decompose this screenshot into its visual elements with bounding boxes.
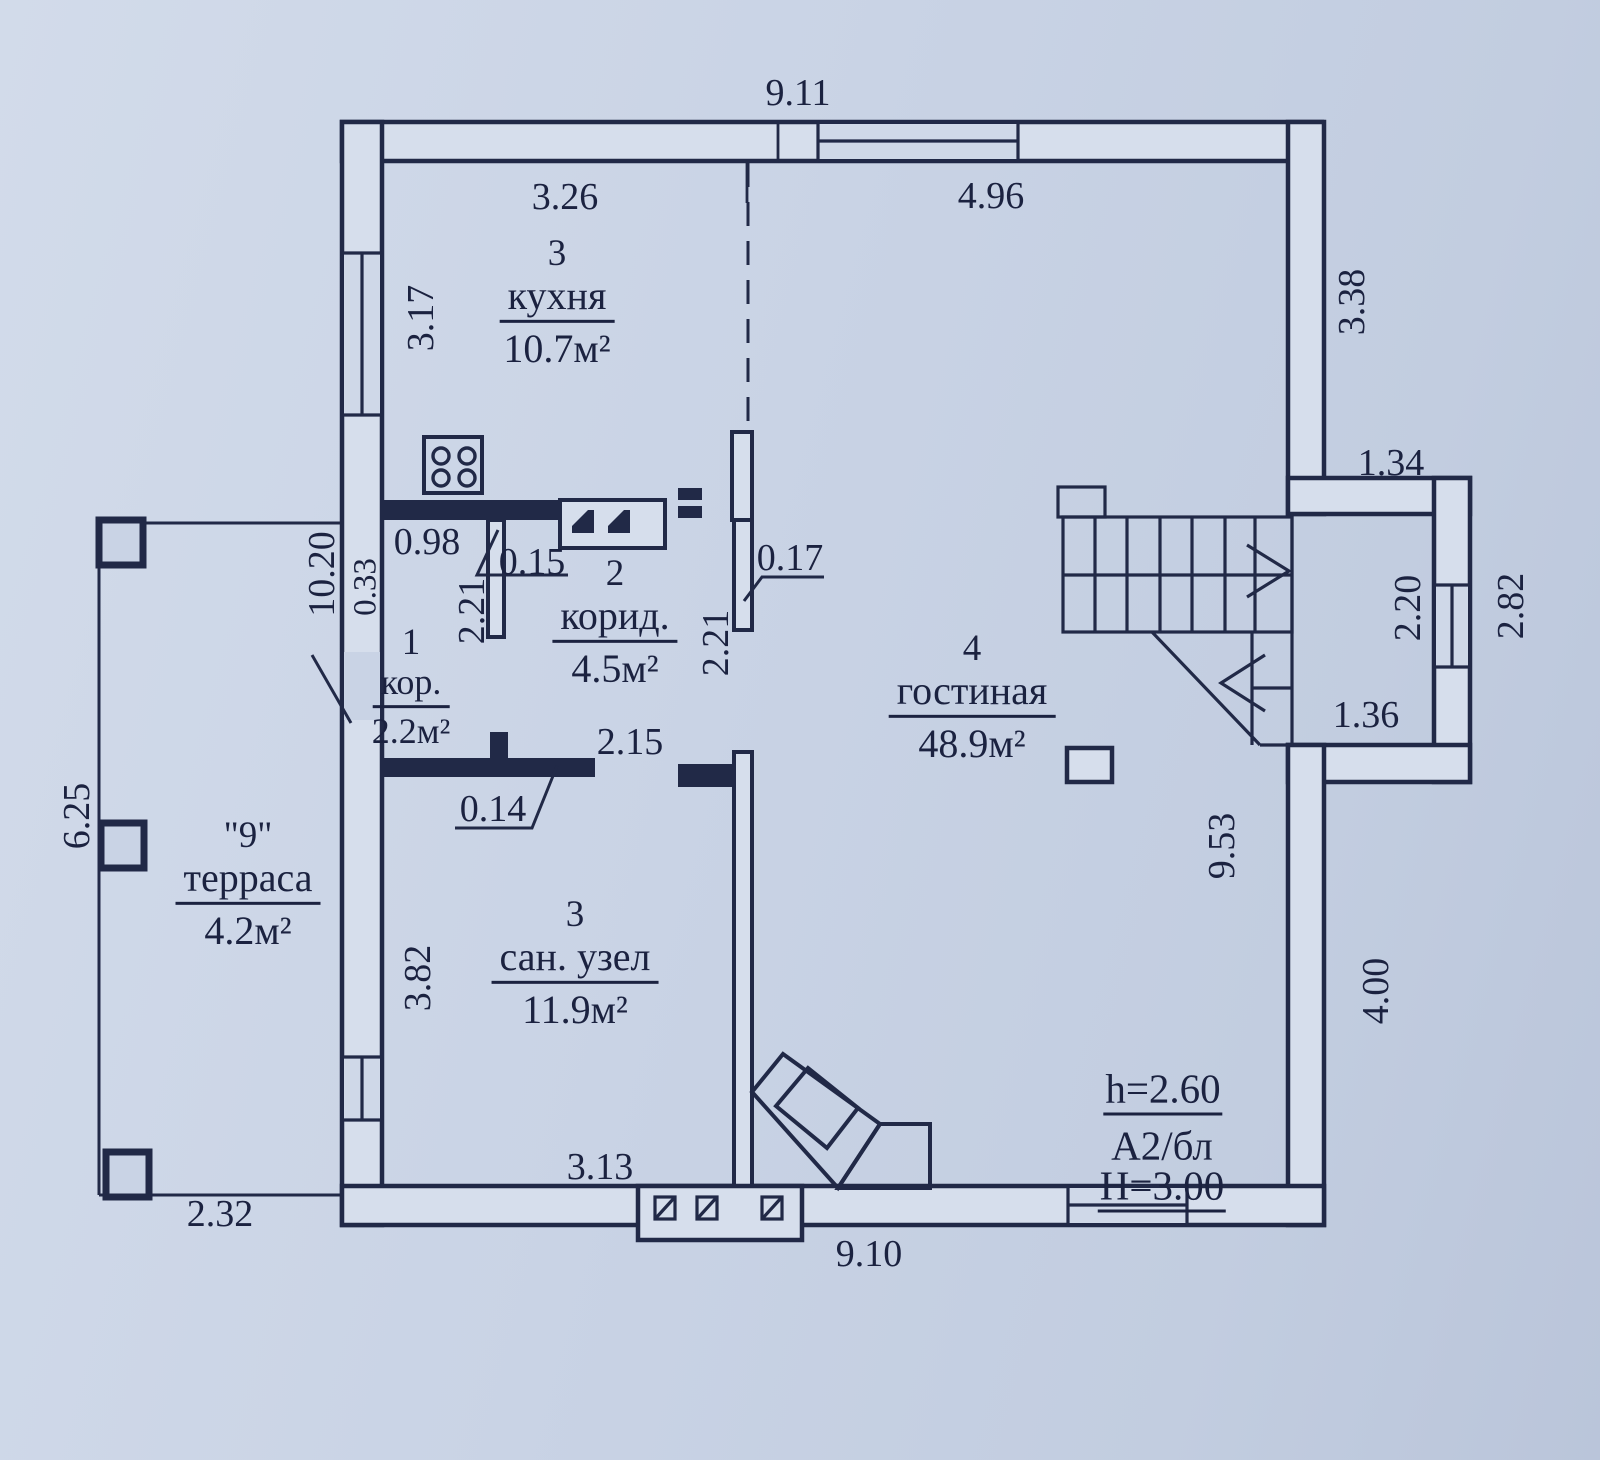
fireplace-icon	[752, 1054, 930, 1188]
room-number: 2	[606, 554, 625, 594]
dim-bottom: 9.10	[836, 1235, 903, 1273]
room-label-bathroom: 3 сан. узел 11.9м²	[492, 895, 659, 1031]
note-storey-height: Н=3.00	[1098, 1166, 1226, 1213]
room-label-kor: 1 кор. 2.2м²	[372, 623, 451, 751]
stairs-treads	[1063, 517, 1292, 632]
dim-living-height: 9.53	[1203, 813, 1241, 880]
wall-bath-top	[382, 758, 595, 777]
dim-bath-wall: 0.14	[460, 790, 527, 828]
room-number: 3	[566, 895, 585, 935]
column-icon	[1067, 748, 1112, 782]
stove-icon	[424, 437, 482, 493]
room-area: 11.9м²	[522, 984, 628, 1031]
room-area: 2.2м²	[372, 708, 451, 751]
door-jamb-lower	[678, 506, 702, 518]
room-number: 4	[963, 629, 982, 669]
terrace-post-1	[99, 520, 143, 565]
wall-bath-stub	[490, 732, 508, 760]
dim-bath-width: 3.13	[567, 1148, 634, 1186]
dim-living-top-width: 4.96	[958, 177, 1025, 215]
dim-right-upper: 3.38	[1333, 269, 1371, 336]
room-name: гостиная	[889, 669, 1056, 718]
room-label-terrace: "9" терраса 4.2м²	[176, 816, 321, 952]
wall-bath-jamb	[678, 764, 735, 787]
stairs-down-arrow-icon	[1221, 655, 1265, 711]
dim-alcove-height: 2.20	[1389, 575, 1427, 642]
stairs-up-arrow-icon	[1247, 545, 1289, 597]
dim-kitchen-width: 3.26	[532, 178, 599, 216]
wall-living-lower	[734, 752, 752, 1186]
dim-overall-top: 9.11	[765, 74, 830, 112]
dim-left-wall: 10.20	[303, 531, 341, 617]
room-area: 4.2м²	[204, 905, 291, 952]
room-name: кухня	[500, 274, 615, 323]
wall-living-stub	[732, 432, 752, 520]
room-label-corridor: 2 корид. 4.5м²	[552, 554, 677, 690]
dim-terrace-width: 2.32	[187, 1195, 254, 1233]
room-name: сан. узел	[492, 935, 659, 984]
dim-wall-thickness: 0.33	[350, 558, 383, 616]
room-number: 3	[548, 234, 567, 274]
note-block-type: А2/бл	[1111, 1126, 1213, 1167]
room-label-kitchen: 3 кухня 10.7м²	[500, 234, 615, 370]
room-area: 48.9м²	[918, 718, 1025, 765]
room-number: 1	[402, 623, 421, 663]
door-jamb-upper	[678, 488, 702, 500]
dim-alcove-width: 1.36	[1333, 696, 1400, 734]
dim-alcove-outer: 2.82	[1492, 573, 1530, 640]
dim-kitchen-height: 3.17	[402, 285, 440, 352]
dim-bath-height: 3.82	[399, 945, 437, 1012]
dim-terrace-height: 6.25	[58, 783, 96, 850]
dim-corridor-right: 2.21	[697, 610, 735, 677]
wall-kitchen-bottom	[382, 500, 560, 520]
flue-block	[638, 1186, 802, 1240]
dim-kor-width: 0.98	[394, 523, 461, 561]
room-area: 4.5м²	[571, 643, 658, 690]
stairs-landing	[1058, 487, 1105, 517]
dim-corridor-left: 2.21	[453, 578, 491, 645]
dim-step-width: 1.34	[1358, 444, 1425, 482]
room-label-living: 4 гостиная 48.9м²	[889, 629, 1056, 765]
dim-right-lower: 4.00	[1357, 958, 1395, 1025]
terrace-post-2	[101, 823, 144, 868]
terrace-post-3	[106, 1152, 149, 1197]
room-area: 10.7м²	[503, 323, 610, 370]
stairs-winder	[1152, 632, 1292, 745]
room-number: "9"	[224, 816, 273, 856]
room-name: кор.	[373, 663, 450, 708]
floor-plan-sheet: 9.11 3.26 4.96 3.38 1.34 3.17 10.20 0.33…	[0, 0, 1600, 1460]
stairs	[1058, 487, 1292, 745]
wall-right-lower	[1288, 745, 1324, 1225]
dim-bath-top: 2.15	[597, 723, 664, 761]
room-name: терраса	[176, 856, 321, 905]
dim-partition-2: 0.17	[757, 539, 824, 577]
room-name: корид.	[552, 594, 677, 643]
note-ceiling-height: h=2.60	[1103, 1069, 1222, 1116]
leader-0-17	[744, 577, 824, 601]
wall-right-upper	[1288, 122, 1324, 514]
